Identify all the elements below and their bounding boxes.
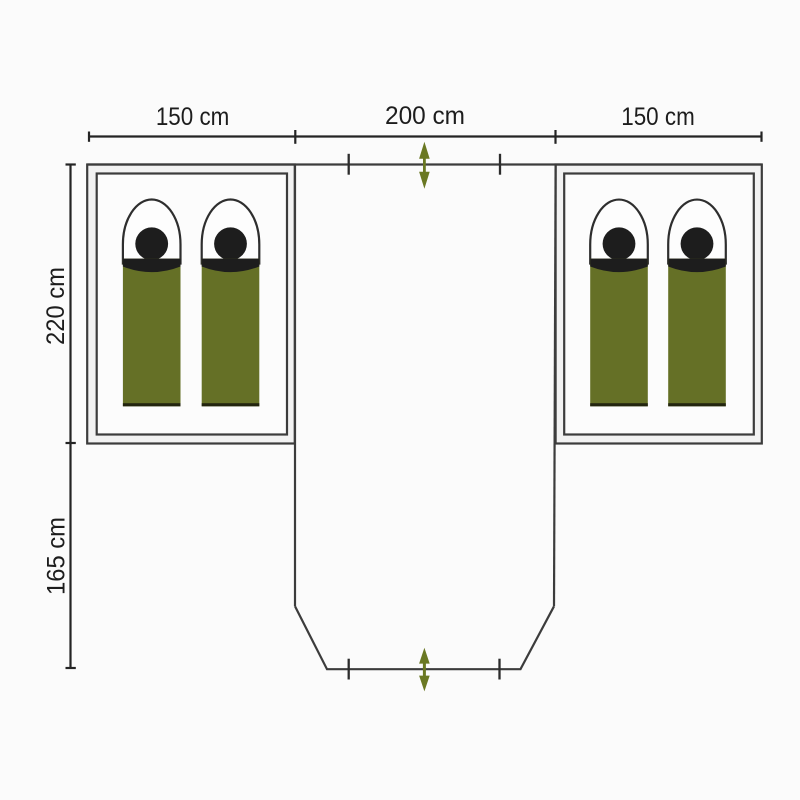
svg-text:220 cm: 220 cm bbox=[42, 267, 70, 345]
svg-text:150 cm: 150 cm bbox=[621, 103, 695, 131]
svg-text:165 cm: 165 cm bbox=[43, 517, 71, 595]
svg-text:150 cm: 150 cm bbox=[156, 103, 230, 131]
svg-text:200 cm: 200 cm bbox=[385, 102, 465, 130]
